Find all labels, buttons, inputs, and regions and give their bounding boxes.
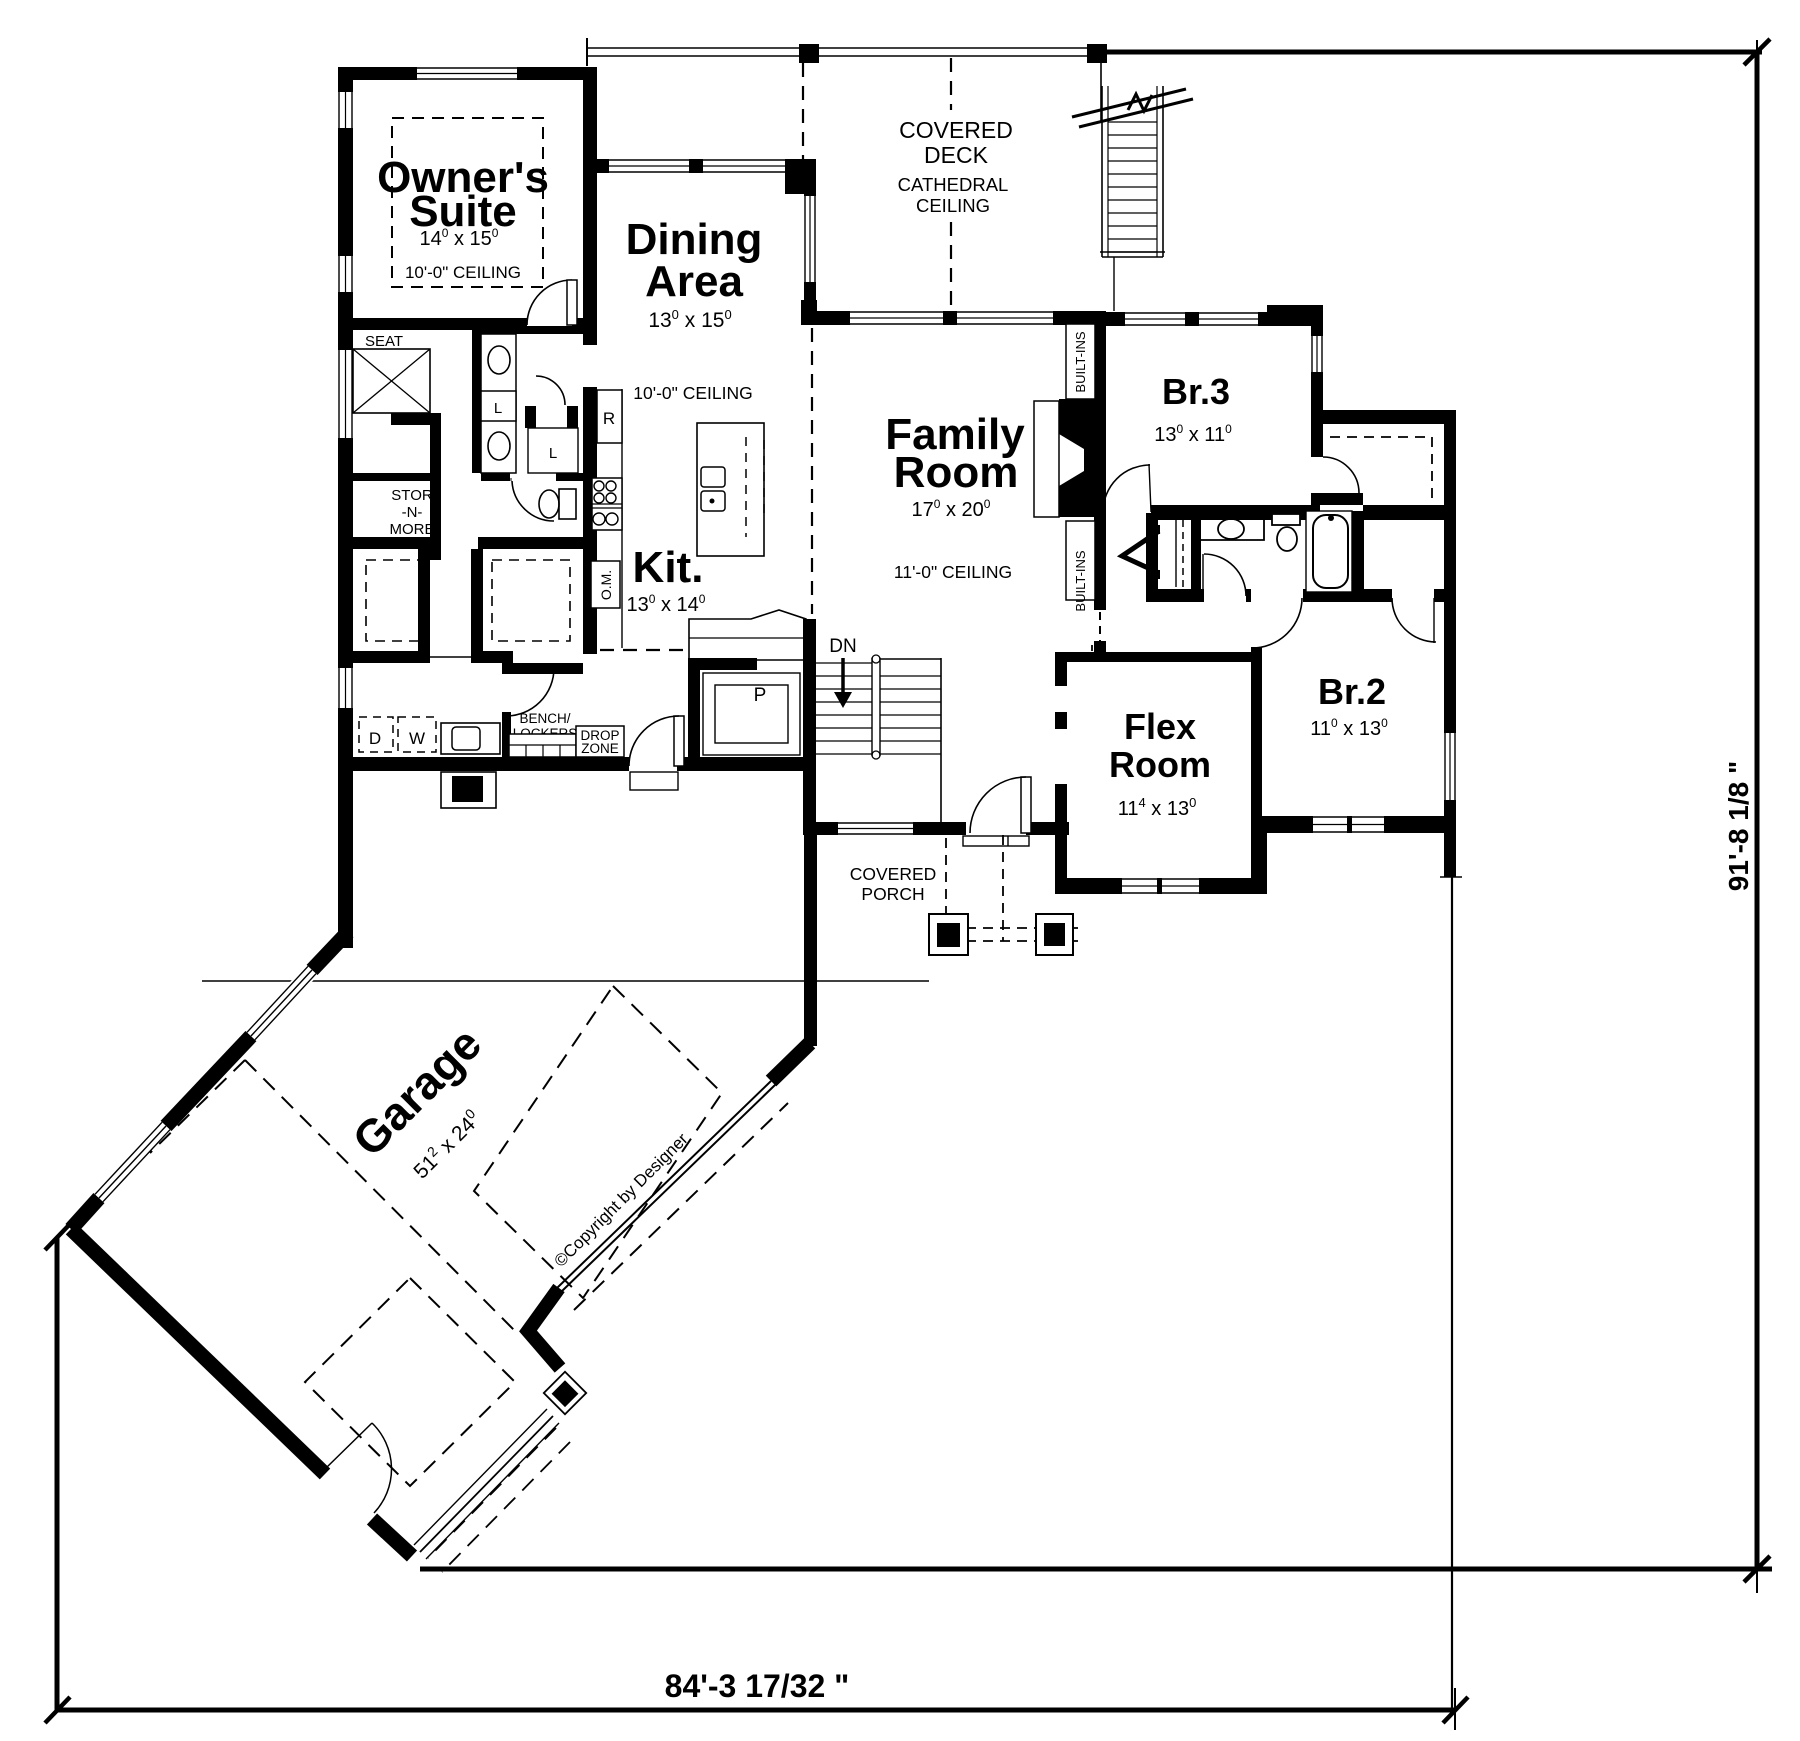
svg-text:130 x 140: 130 x 140 (627, 592, 706, 616)
svg-text:MORE: MORE (390, 521, 435, 538)
svg-text:BUILT-INS: BUILT-INS (1073, 331, 1088, 392)
svg-text:ZONE: ZONE (581, 741, 619, 756)
svg-text:STOR: STOR (391, 487, 433, 504)
svg-text:W: W (409, 729, 425, 748)
svg-text:BUILT-INS: BUILT-INS (1073, 550, 1088, 611)
svg-text:110 x 130: 110 x 130 (1310, 716, 1388, 740)
svg-text:BENCH/: BENCH/ (519, 711, 570, 726)
svg-text:Area: Area (645, 257, 743, 306)
svg-text:130 x 150: 130 x 150 (648, 307, 731, 332)
svg-text:10'-0" CEILING: 10'-0" CEILING (633, 383, 752, 403)
svg-text:Br.2: Br.2 (1318, 671, 1386, 712)
svg-text:SEAT: SEAT (365, 333, 403, 350)
svg-text:Flex: Flex (1124, 706, 1196, 747)
svg-text:-N-: -N- (402, 504, 423, 521)
svg-text:DN: DN (829, 636, 856, 657)
svg-text:Room: Room (894, 448, 1019, 497)
svg-text:Room: Room (1109, 744, 1211, 785)
svg-text:L: L (494, 400, 502, 417)
svg-text:Kit.: Kit. (633, 543, 704, 592)
svg-text:L: L (549, 445, 557, 462)
svg-text:P: P (754, 685, 767, 706)
svg-text:114 x 130: 114 x 130 (1118, 795, 1197, 820)
svg-text:COVERED: COVERED (850, 864, 937, 884)
svg-text:COVERED: COVERED (899, 117, 1013, 143)
svg-text:CEILING: CEILING (916, 195, 990, 216)
svg-text:130 x 110: 130 x 110 (1154, 422, 1232, 446)
svg-text:84'-3 17/32 ": 84'-3 17/32 " (665, 1668, 850, 1704)
svg-text:Br.3: Br.3 (1162, 371, 1230, 412)
svg-text:170 x 200: 170 x 200 (912, 497, 991, 521)
svg-text:91'-8 1/8 ": 91'-8 1/8 " (1723, 761, 1754, 891)
svg-text:PORCH: PORCH (861, 884, 924, 904)
svg-text:D: D (369, 729, 381, 748)
svg-text:10'-0" CEILING: 10'-0" CEILING (405, 263, 521, 282)
svg-text:140 x 150: 140 x 150 (420, 226, 499, 250)
svg-text:R: R (603, 409, 615, 428)
svg-text:11'-0" CEILING: 11'-0" CEILING (894, 562, 1012, 582)
svg-text:CATHEDRAL: CATHEDRAL (898, 174, 1009, 195)
svg-text:O.M.: O.M. (598, 570, 614, 600)
svg-text:DECK: DECK (924, 142, 989, 168)
